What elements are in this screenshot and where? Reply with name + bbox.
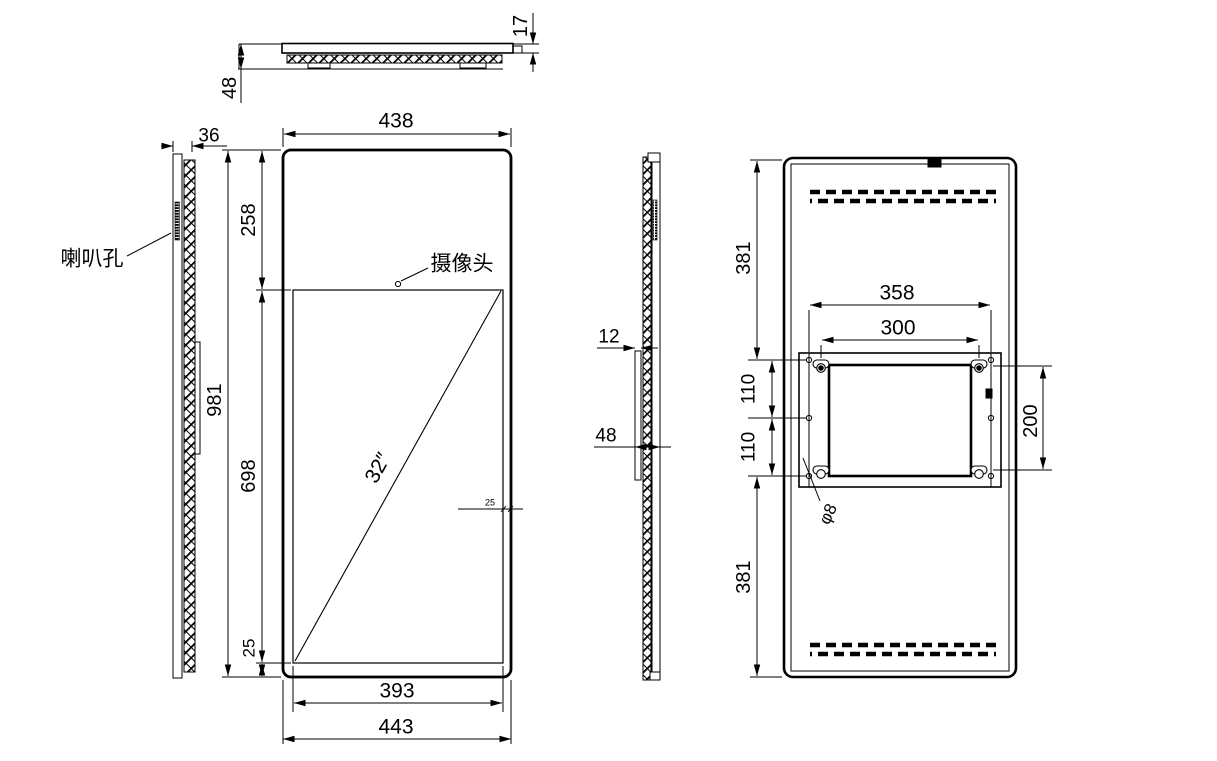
top-view-linework	[238, 13, 539, 103]
side2-hatched-body	[643, 157, 651, 680]
back-inner-rim	[791, 164, 1009, 671]
hole-dia-leader-line	[803, 458, 820, 501]
bracket-latch	[986, 389, 992, 398]
top-view-hatched-body	[287, 55, 502, 63]
camera-leader-line	[401, 268, 428, 281]
label-speaker-holes: 喇叭孔	[61, 249, 124, 270]
keyhole-slot	[971, 360, 987, 372]
keyhole-slot	[971, 466, 987, 478]
keyhole-slot	[813, 360, 829, 372]
front-outer-cabinet	[283, 150, 511, 677]
dim-back-hole-spacing-upper: 110	[740, 374, 759, 404]
dim-bracket-plate-thickness: 12	[598, 328, 619, 347]
screen-diagonal	[295, 291, 501, 661]
top-view-foot	[308, 63, 330, 68]
wall-bracket-profile	[635, 351, 641, 480]
technical-drawing-canvas: 48 17 36 喇叭孔 438 258 981 698 25 摄像头 32″ …	[0, 0, 1217, 761]
dim-front-screen-width: 393	[379, 681, 414, 702]
dim-back-bottom-section: 381	[734, 560, 754, 593]
top-view-foot	[460, 63, 486, 68]
keyhole-slot	[813, 466, 829, 478]
speaker-leader-line	[127, 233, 171, 256]
camera-dot	[395, 281, 400, 286]
side-back-bracket-bump	[195, 342, 200, 454]
side2-top-cap	[648, 153, 660, 162]
dim-front-screen-height: 698	[239, 459, 259, 492]
dim-front-width-bottom: 443	[378, 717, 413, 738]
vesa-frame	[829, 365, 971, 476]
back-view-linework	[748, 158, 1052, 677]
dim-back-vesa-height: 200	[1021, 404, 1041, 437]
dim-front-top-margin: 258	[239, 203, 259, 236]
side-hatched-body	[184, 160, 195, 672]
speaker-grille	[175, 202, 180, 240]
right-side-view-linework	[594, 153, 671, 680]
top-view-right-tab	[513, 46, 522, 53]
top-view-glass	[282, 44, 513, 54]
label-camera: 摄像头	[431, 254, 494, 275]
dim-top-depth: 48	[220, 77, 240, 99]
dim-back-top-section: 381	[734, 241, 754, 274]
side2-bottom-cap	[650, 672, 660, 680]
drawing-linework	[0, 0, 1217, 761]
dim-side-thickness: 36	[198, 127, 219, 146]
dim-front-side-margin: 25	[485, 499, 495, 508]
dim-front-width-top: 438	[378, 111, 413, 132]
front-view-linework	[222, 128, 523, 744]
back-top-sensor	[928, 158, 941, 167]
dim-back-vesa-width: 300	[880, 318, 915, 339]
dim-front-height: 981	[205, 383, 225, 416]
back-outer-cabinet	[784, 158, 1016, 677]
dim-front-bottom-margin: 25	[241, 639, 258, 658]
dim-back-bracket-width: 358	[879, 283, 914, 304]
dim-back-hole-spacing-lower: 110	[740, 432, 759, 462]
speaker-grille-2	[653, 200, 657, 240]
dim-side2-depth: 48	[595, 427, 616, 446]
dim-top-front-thickness: 17	[511, 15, 531, 37]
